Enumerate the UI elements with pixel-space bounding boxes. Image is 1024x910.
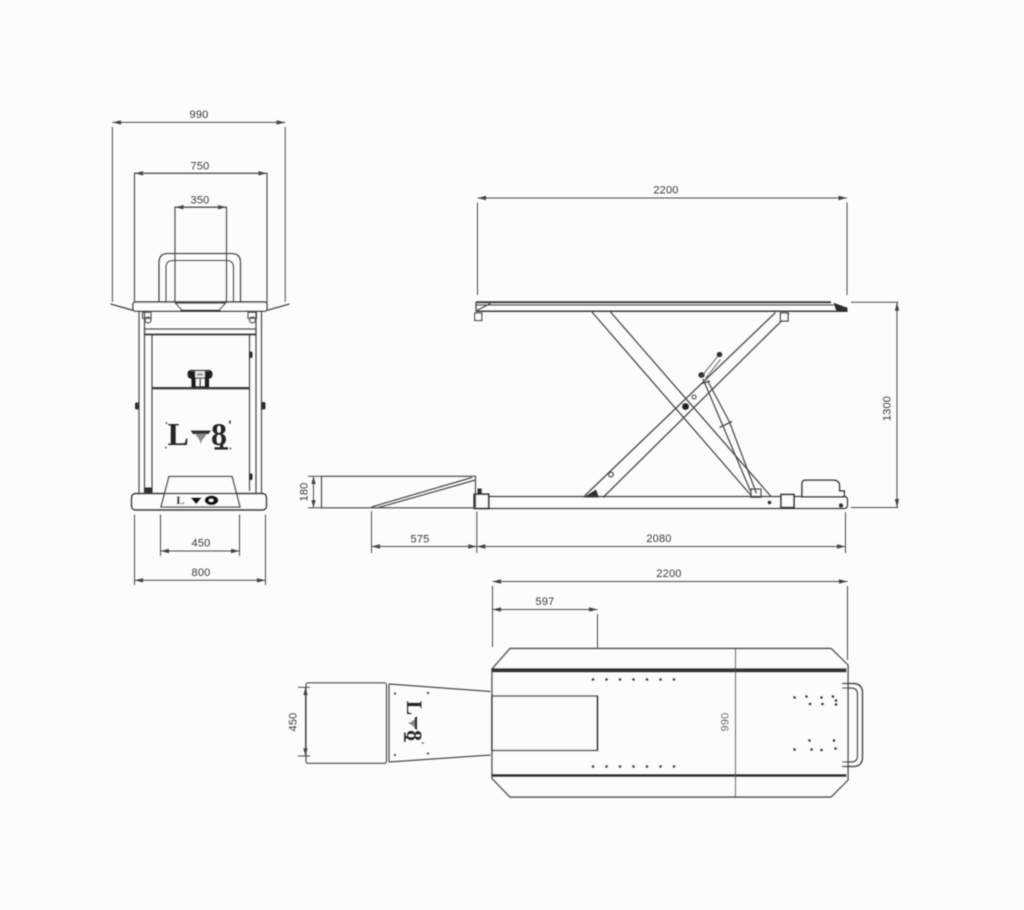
svg-text:750: 750 xyxy=(191,161,210,173)
svg-text:2200: 2200 xyxy=(653,185,678,197)
svg-text:990: 990 xyxy=(720,713,732,732)
svg-text:180: 180 xyxy=(299,483,311,502)
svg-text:1300: 1300 xyxy=(882,396,894,421)
svg-text:597: 597 xyxy=(536,596,555,608)
svg-text:2200: 2200 xyxy=(656,568,681,580)
svg-text:L: L xyxy=(176,494,185,507)
svg-text:450: 450 xyxy=(192,538,211,550)
svg-text:800: 800 xyxy=(192,567,211,579)
svg-text:575: 575 xyxy=(411,534,430,546)
svg-text:350: 350 xyxy=(191,195,210,207)
svg-text:2080: 2080 xyxy=(646,533,671,545)
svg-text:990: 990 xyxy=(190,109,209,121)
svg-text:450: 450 xyxy=(288,713,300,732)
